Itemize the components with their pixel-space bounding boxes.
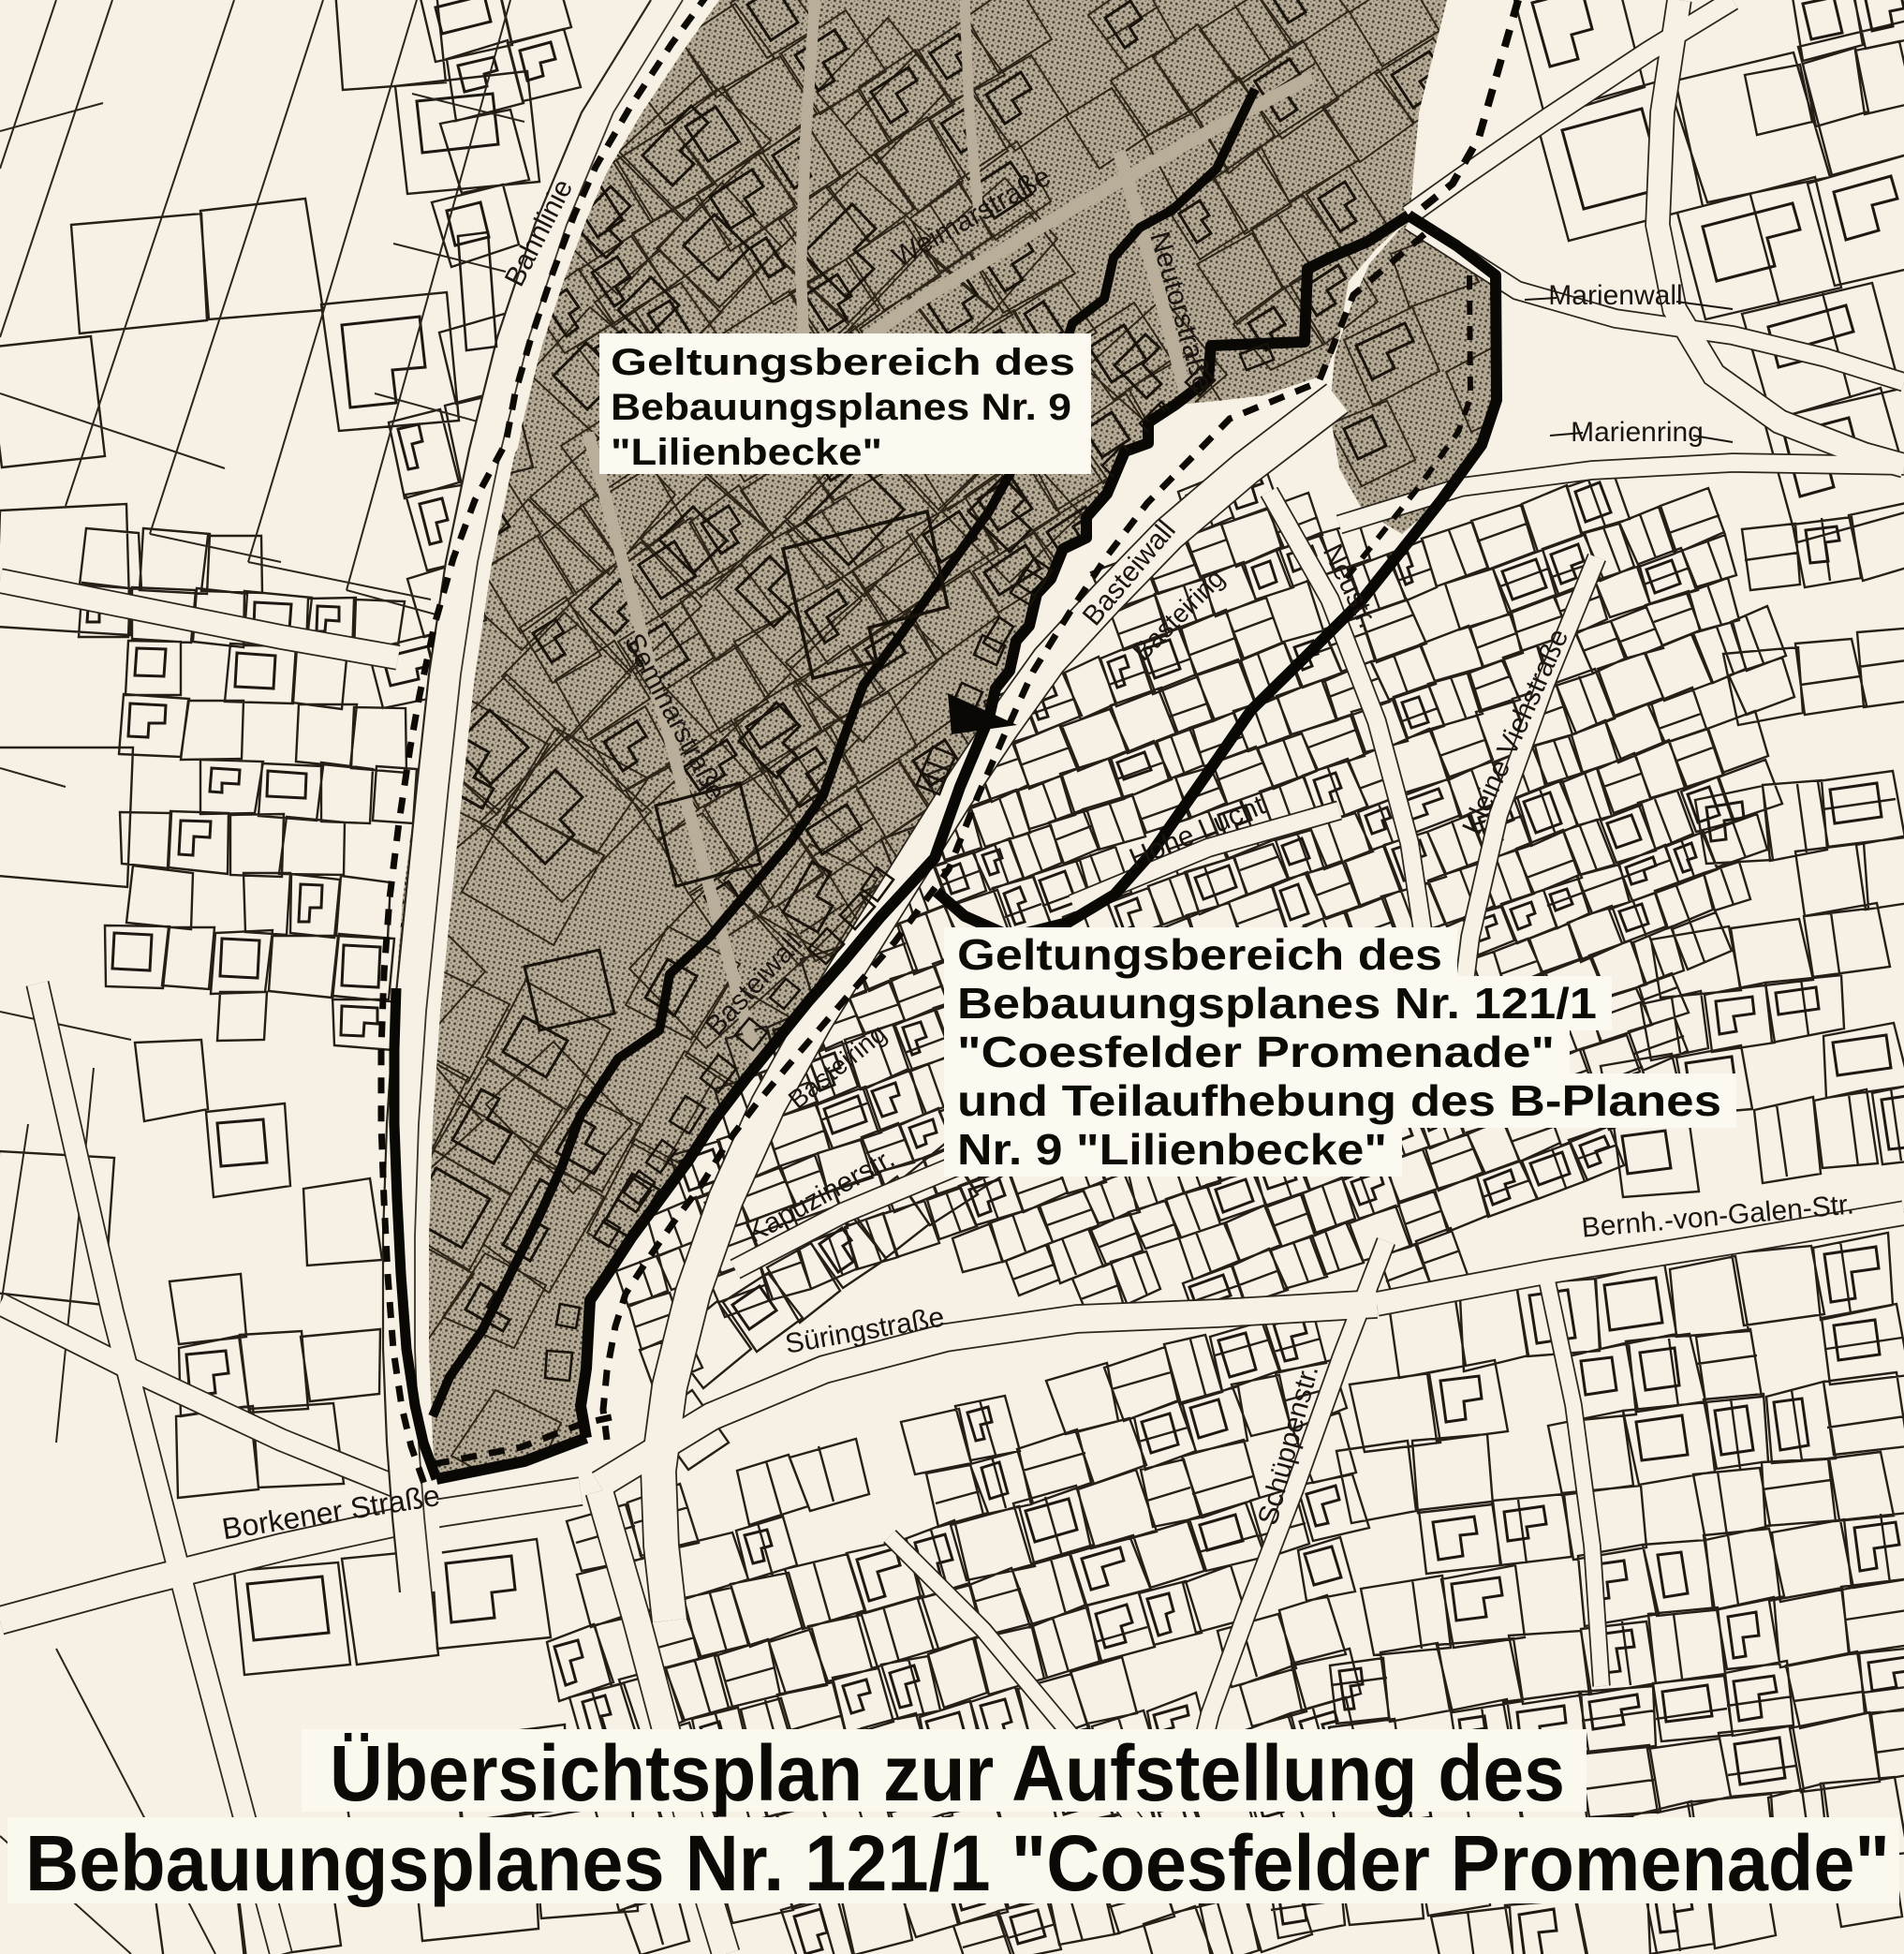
svg-text:Bebauungsplanes Nr. 9: Bebauungsplanes Nr. 9 [611,387,1071,428]
svg-text:Bebauungsplanes Nr. 121/1: Bebauungsplanes Nr. 121/1 [957,979,1597,1028]
svg-text:Geltungsbereich des: Geltungsbereich des [611,342,1075,383]
svg-text:"Coesfelder Promenade": "Coesfelder Promenade" [957,1028,1555,1076]
svg-text:Übersichtsplan zur Aufstellung: Übersichtsplan zur Aufstellung des [330,1729,1565,1817]
svg-text:Nr. 9 "Lilienbecke": Nr. 9 "Lilienbecke" [957,1125,1387,1174]
svg-text:Marienring: Marienring [1571,417,1704,448]
svg-text:Geltungsbereich des: Geltungsbereich des [957,930,1442,979]
svg-text:und Teilaufhebung des B-Planes: und Teilaufhebung des B-Planes [957,1076,1721,1125]
svg-text:Bebauungsplanes Nr. 121/1 "Coe: Bebauungsplanes Nr. 121/1 "Coesfelder Pr… [25,1819,1890,1907]
svg-text:"Lilienbecke": "Lilienbecke" [611,432,882,473]
svg-text:Marienwall: Marienwall [1548,280,1682,311]
